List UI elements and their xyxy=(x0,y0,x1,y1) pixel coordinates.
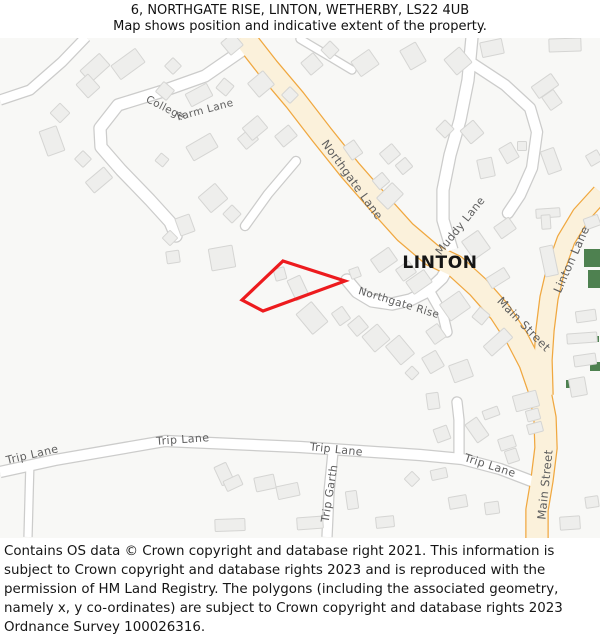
college-farm-driveway xyxy=(245,161,296,226)
building xyxy=(375,516,394,529)
building xyxy=(482,406,500,420)
building xyxy=(433,425,451,443)
building xyxy=(215,518,245,531)
building xyxy=(155,153,169,167)
building xyxy=(39,126,65,157)
building xyxy=(276,482,300,499)
building xyxy=(379,143,400,164)
map-description: Map shows position and indicative extent… xyxy=(0,19,600,35)
building xyxy=(499,142,520,164)
building xyxy=(75,151,92,168)
road-label: Trip Garth xyxy=(318,464,340,525)
green-area xyxy=(588,270,600,288)
building xyxy=(395,157,413,175)
building xyxy=(477,157,496,179)
map-area: CollegeFarm LaneNorthgate LaneMuddy Lane… xyxy=(0,38,600,538)
building xyxy=(85,167,112,193)
green-area xyxy=(584,249,600,267)
trip-stub-up-road xyxy=(457,402,459,457)
building xyxy=(198,183,228,212)
building xyxy=(331,306,350,326)
building xyxy=(186,133,218,161)
building xyxy=(465,417,489,443)
building xyxy=(275,125,298,147)
building xyxy=(166,250,181,264)
copyright-notice: Contains OS data © Crown copyright and d… xyxy=(0,538,600,637)
building xyxy=(50,103,70,123)
building xyxy=(575,309,596,323)
building xyxy=(494,217,517,239)
building xyxy=(405,366,419,380)
building xyxy=(541,215,551,230)
building xyxy=(400,42,427,70)
building xyxy=(585,496,599,509)
building xyxy=(504,448,519,464)
building xyxy=(111,48,145,79)
trip-stub-left-road xyxy=(28,461,30,537)
building xyxy=(430,467,448,480)
building xyxy=(165,58,182,75)
building xyxy=(567,332,598,344)
building xyxy=(569,377,588,398)
building xyxy=(480,38,505,57)
place-label-linton: LINTON xyxy=(402,253,477,273)
building xyxy=(448,495,468,510)
building xyxy=(484,501,500,515)
building xyxy=(560,516,581,530)
building xyxy=(518,142,527,151)
building xyxy=(585,150,600,167)
building xyxy=(426,392,440,410)
building xyxy=(223,205,241,223)
building xyxy=(296,302,328,335)
building xyxy=(216,78,234,96)
building xyxy=(422,350,445,374)
property-address-title: 6, NORTHGATE RISE, LINTON, WETHERBY, LS2… xyxy=(0,3,600,19)
building xyxy=(208,245,235,271)
building xyxy=(549,38,581,52)
building xyxy=(370,247,397,273)
muddy-loop-road xyxy=(470,62,537,213)
map-canvas: CollegeFarm LaneNorthgate LaneMuddy Lane… xyxy=(0,38,600,538)
building xyxy=(345,490,358,509)
building xyxy=(254,474,276,492)
map-header: 6, NORTHGATE RISE, LINTON, WETHERBY, LS2… xyxy=(0,0,600,38)
building xyxy=(573,353,596,367)
road-label: Farm Lane xyxy=(176,97,235,124)
road-label: Trip Lane xyxy=(308,440,363,459)
building xyxy=(404,471,420,487)
building xyxy=(483,328,513,356)
building xyxy=(540,147,561,174)
building xyxy=(449,359,474,383)
